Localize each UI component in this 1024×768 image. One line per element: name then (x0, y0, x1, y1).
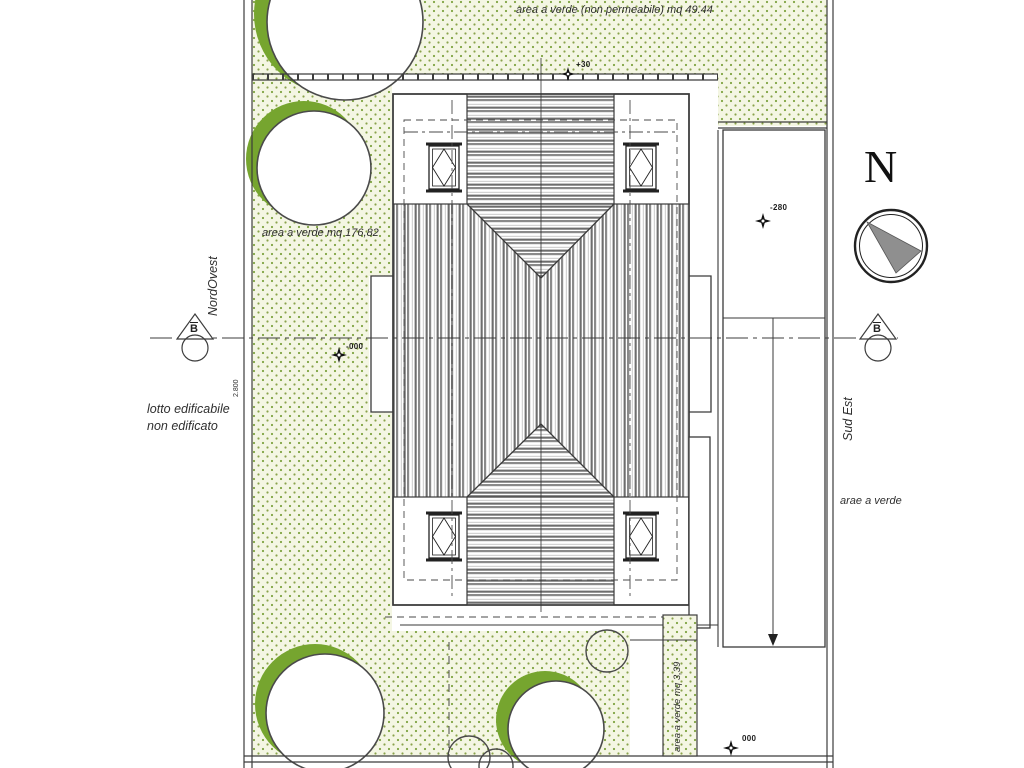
skylight-top-right (623, 144, 659, 191)
elevation-label-roof: +30 (576, 60, 590, 69)
site-plan-drawing (0, 0, 1024, 768)
section-letter-right: B (873, 323, 881, 335)
skylight-bottom-left (426, 513, 462, 560)
lot-note-line1: lotto edificabile (147, 401, 230, 418)
dimension-2800: 2.800 (233, 379, 240, 397)
label-green-area-strip: area a verde mq 3,39 (672, 662, 683, 752)
site-plan-canvas: area a verde (non permeabile) mq 49.44 a… (0, 0, 1024, 768)
label-sudest: Sud Est (841, 397, 855, 441)
label-green-area-top: area a verde (non permeabile) mq 49.44 (516, 4, 713, 16)
label-lot-note: lotto edificabile non edificato (147, 401, 230, 435)
section-letter-left: B (190, 323, 198, 335)
skylight-top-left (426, 144, 462, 191)
elevation-star-bottom (723, 740, 739, 756)
elevation-label-ramp: -280 (770, 203, 787, 212)
elevation-label-left: -000 (346, 342, 363, 351)
lot-note-line2: non edificato (147, 418, 230, 435)
roof-horizontal-slope-bottom (467, 497, 614, 605)
section-marker-right (860, 314, 896, 361)
label-green-area-right: arae a verde (840, 495, 902, 507)
skylight-bottom-right (623, 513, 659, 560)
section-marker-left (177, 314, 213, 361)
label-nordovest: NordOvest (206, 256, 220, 316)
north-letter: N (864, 140, 897, 193)
elevation-label-bottom: 000 (742, 734, 756, 743)
compass-icon (855, 210, 927, 282)
label-green-area-left: area a verde mq 176,82 (262, 227, 379, 239)
compass-needle (867, 222, 921, 273)
roof-horizontal-slope-top (467, 94, 614, 204)
